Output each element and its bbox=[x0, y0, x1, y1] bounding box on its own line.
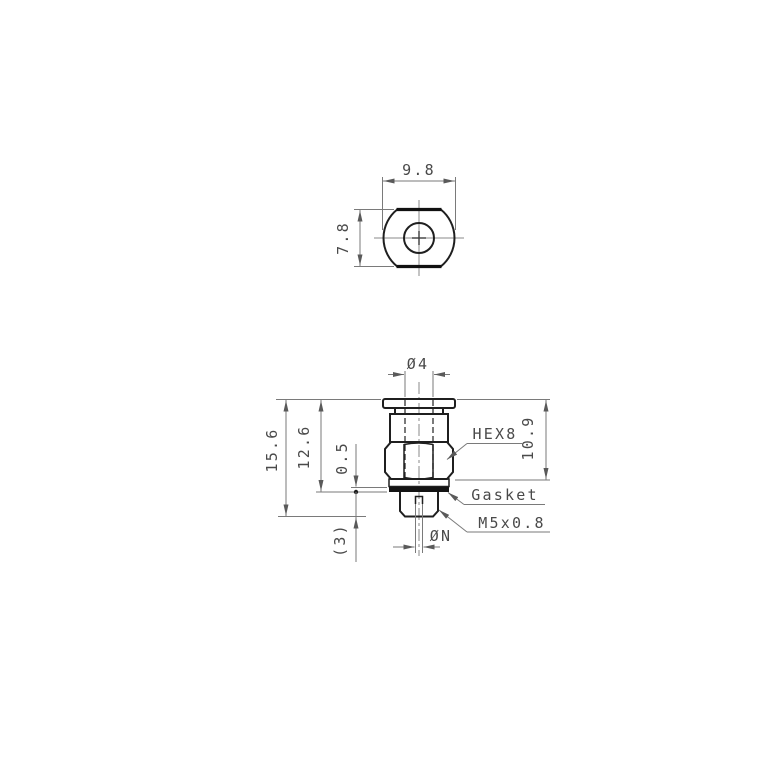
gasket-band bbox=[389, 487, 449, 492]
dim-7-8-text: 7.8 bbox=[334, 221, 352, 255]
dim-height-to-gasket: 12.6 bbox=[295, 400, 321, 493]
dim-9-8-text: 9.8 bbox=[402, 161, 436, 179]
dim-orifice: ØN bbox=[393, 517, 452, 554]
dim-body-height-text: 10.9 bbox=[519, 416, 537, 461]
top-view-centerlines bbox=[374, 200, 464, 276]
dim-body-height: 10.9 bbox=[519, 400, 546, 481]
label-gasket: Gasket bbox=[448, 486, 545, 505]
front-view: Ø4 15.6 12.6 10.9 0.5 bbox=[263, 355, 550, 562]
label-thread-text: M5x0.8 bbox=[478, 514, 545, 532]
label-gasket-text: Gasket bbox=[471, 486, 538, 504]
label-hex: HEX8 bbox=[447, 425, 523, 460]
dim-gasket-thickness: 0.5 bbox=[333, 441, 358, 494]
fitting-drawing-canvas: 9.8 7.8 bbox=[0, 0, 768, 768]
dim-orifice-text: ØN bbox=[430, 527, 452, 545]
label-hex-text: HEX8 bbox=[473, 425, 518, 443]
technical-drawing-page: 9.8 7.8 bbox=[0, 0, 768, 768]
dim-height-to-gasket-text: 12.6 bbox=[295, 425, 313, 470]
dim-thread-length: (3) bbox=[331, 492, 356, 562]
top-view: 9.8 7.8 bbox=[334, 161, 464, 276]
label-thread: M5x0.8 bbox=[439, 510, 550, 532]
dim-thread-length-text: (3) bbox=[331, 523, 349, 557]
dim-tube-diameter-text: Ø4 bbox=[407, 355, 429, 373]
dim-overall-height-text: 15.6 bbox=[263, 428, 281, 473]
dim-gasket-thickness-text: 0.5 bbox=[333, 441, 351, 475]
dim-overall-height: 15.6 bbox=[263, 400, 286, 517]
